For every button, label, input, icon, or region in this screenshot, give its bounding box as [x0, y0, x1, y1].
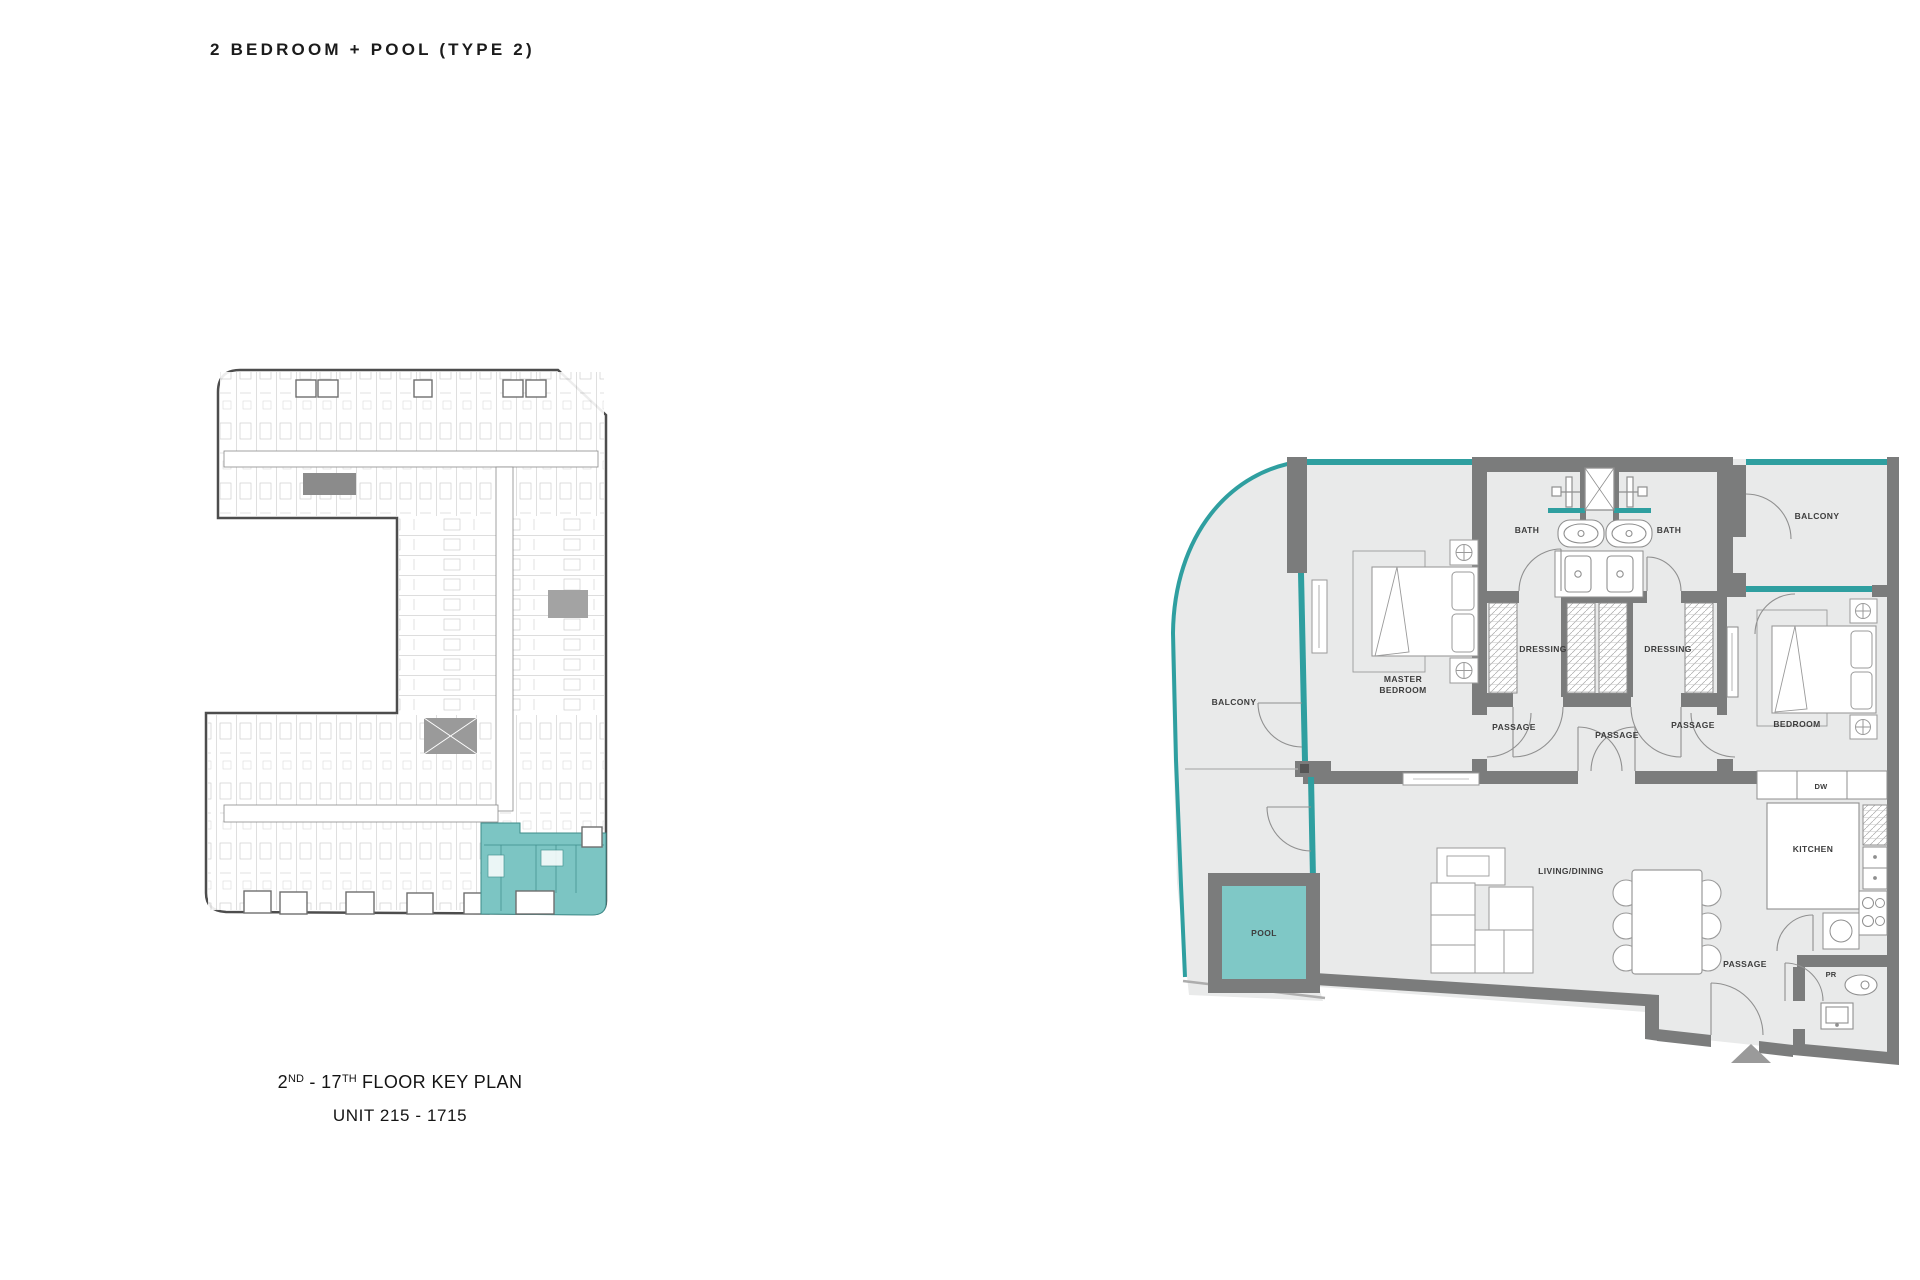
- room-label-living-dining: LIVING/DINING: [1538, 866, 1604, 876]
- balcony-right-top-glass: [1746, 459, 1887, 465]
- room-label-bath-left: BATH: [1515, 525, 1540, 535]
- master-pillow-2: [1452, 614, 1474, 652]
- vanity-left: [1558, 520, 1604, 547]
- kitchen-sink: [1823, 913, 1859, 949]
- room-label-balcony-left: BALCONY: [1212, 697, 1257, 707]
- wardrobe-dressing-left: [1489, 603, 1517, 693]
- room-label-master-2: BEDROOM: [1379, 685, 1426, 695]
- toilet-left: [1565, 556, 1591, 592]
- key-plan: [196, 355, 616, 925]
- wardrobe-center-right: [1599, 603, 1627, 693]
- page-title: 2 BEDROOM + POOL (TYPE 2): [210, 40, 535, 60]
- room-label-master-1: MASTER: [1384, 674, 1422, 684]
- room-label-pool: POOL: [1251, 928, 1277, 938]
- master-cabinet: [1312, 580, 1327, 653]
- floor-plan-page: { "page": { "title": "2 BEDROOM + POOL (…: [0, 0, 1920, 1280]
- unit-floor-plan: POOL: [1145, 415, 1915, 1065]
- master-nightstand-bottom: [1450, 658, 1478, 683]
- dining-set: [1613, 870, 1721, 974]
- room-label-pr: PR: [1826, 970, 1837, 979]
- vanity-right: [1606, 520, 1652, 547]
- bedroom-pillow-1: [1851, 631, 1872, 668]
- room-label-passage-center: PASSAGE: [1595, 730, 1639, 740]
- master-bedroom-window: [1307, 459, 1472, 465]
- bedroom-nightstand-bottom: [1850, 715, 1877, 739]
- room-label-dw: DW: [1815, 782, 1829, 791]
- pr-toilet: [1845, 975, 1877, 995]
- pool: POOL: [1208, 873, 1320, 993]
- pr-sink: [1821, 1003, 1853, 1029]
- fridge: [1863, 805, 1887, 845]
- stove: [1859, 891, 1887, 935]
- key-plan-caption-units: UNIT 215 - 1715: [150, 1106, 650, 1126]
- key-plan-svg: [196, 355, 616, 925]
- shower-glass-right: [1614, 508, 1651, 513]
- master-pillow-1: [1452, 572, 1474, 610]
- sofa-chaise: [1489, 887, 1533, 930]
- room-label-balcony-right: BALCONY: [1795, 511, 1840, 521]
- key-plan-caption: 2ND - 17TH FLOOR KEY PLAN UNIT 215 - 171…: [150, 1072, 650, 1126]
- kitchen-island: [1767, 803, 1859, 909]
- room-label-passage-left: PASSAGE: [1492, 722, 1536, 732]
- bedroom-pillow-2: [1851, 672, 1872, 709]
- unit-floor-plan-svg: POOL: [1145, 415, 1915, 1065]
- wardrobe-center-left: [1567, 603, 1595, 693]
- room-label-dressing-left: DRESSING: [1519, 644, 1567, 654]
- toilet-right: [1607, 556, 1633, 592]
- shower-glass-left: [1548, 508, 1585, 513]
- room-label-bedroom: BEDROOM: [1773, 719, 1820, 729]
- room-label-bath-right: BATH: [1657, 525, 1682, 535]
- bedroom-nightstand-top: [1850, 599, 1877, 623]
- master-nightstand-top: [1450, 540, 1478, 565]
- key-plan-highlighted-unit: [481, 823, 606, 915]
- room-label-kitchen: KITCHEN: [1793, 844, 1834, 854]
- room-label-passage-right: PASSAGE: [1671, 720, 1715, 730]
- bedroom-window: [1746, 586, 1872, 592]
- room-label-dressing-right: DRESSING: [1644, 644, 1692, 654]
- wall-junction: [1300, 764, 1309, 773]
- room-label-passage-entry: PASSAGE: [1723, 959, 1767, 969]
- dining-table: [1632, 870, 1702, 974]
- sofa-left-column: [1431, 883, 1475, 973]
- key-plan-caption-floors: 2ND - 17TH FLOOR KEY PLAN: [150, 1072, 650, 1093]
